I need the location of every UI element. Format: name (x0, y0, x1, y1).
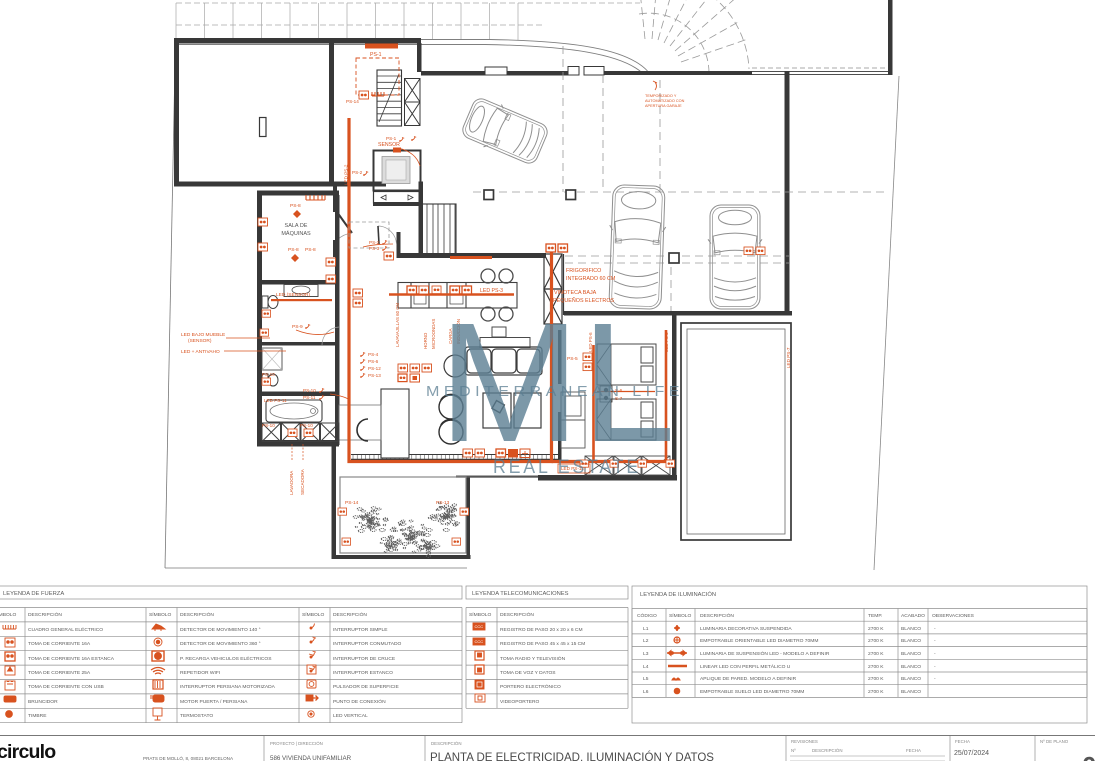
svg-text:DESCRIPCIÓN: DESCRIPCIÓN (180, 611, 214, 618)
svg-text:APLIQUE DE PARED. MODELO A DEF: APLIQUE DE PARED. MODELO A DEFINIR (700, 676, 797, 682)
svg-text:DETECTOR DE MOVIMIENTO 360 °: DETECTOR DE MOVIMIENTO 360 ° (180, 641, 261, 647)
svg-text:CCC: CCC (475, 624, 484, 629)
svg-text:BLANCO: BLANCO (901, 638, 921, 644)
svg-text:VIDEOPORTERO: VIDEOPORTERO (500, 699, 540, 705)
svg-text:BLANCO: BLANCO (901, 651, 921, 657)
svg-text:LEYENDA TELECOMUNICACIONES: LEYENDA TELECOMUNICACIONES (472, 591, 569, 597)
svg-text:ACABADO: ACABADO (901, 613, 925, 619)
svg-text:TERMOSTATO: TERMOSTATO (180, 713, 213, 719)
svg-text:LED VERTICAL: LED VERTICAL (333, 713, 368, 719)
svg-text:HORNO: HORNO (423, 332, 428, 349)
svg-text:L3: L3 (643, 651, 649, 657)
svg-text:2700 K: 2700 K (868, 689, 884, 695)
svg-text:PORTERO ELECTRÓNICO: PORTERO ELECTRÓNICO (500, 683, 561, 690)
svg-text:LAVAVAJILLAS 60 CM: LAVAVAJILLAS 60 CM (395, 303, 400, 347)
svg-text:FECHA: FECHA (955, 739, 970, 744)
svg-text:PRATS DE MOLLÓ, 8, 08021 BARCE: PRATS DE MOLLÓ, 8, 08021 BARCELONA (143, 755, 234, 761)
svg-text:BRUNCIDOR: BRUNCIDOR (28, 699, 58, 705)
svg-text:DESCRIPCIÓN: DESCRIPCIÓN (700, 612, 734, 619)
svg-text:DESCRIPCIÓN: DESCRIPCIÓN (500, 611, 534, 618)
svg-text:BLANCO: BLANCO (901, 676, 921, 682)
svg-text:PS-4: PS-4 (368, 352, 379, 357)
svg-text:LED (SENSOR): LED (SENSOR) (276, 292, 311, 298)
svg-text:CUADRO GENERAL ELÉCTRICO: CUADRO GENERAL ELÉCTRICO (28, 626, 103, 633)
svg-text:PS-3: PS-3 (369, 246, 380, 251)
svg-text:OBSERVACIONES: OBSERVACIONES (932, 613, 975, 619)
svg-text:DESCRIPCIÓN: DESCRIPCIÓN (431, 741, 462, 746)
svg-text:PS-11: PS-11 (303, 395, 316, 400)
svg-text:2700 K: 2700 K (868, 651, 884, 657)
svg-text:PROYECTO | DIRECCIÓN: PROYECTO | DIRECCIÓN (270, 741, 323, 746)
svg-text:FECHA: FECHA (906, 748, 921, 753)
svg-text:REPETIDOR WIFI: REPETIDOR WIFI (180, 670, 220, 676)
svg-text:CÓDIGO: CÓDIGO (637, 612, 657, 619)
svg-text:L4: L4 (643, 664, 649, 670)
svg-text:2700 K: 2700 K (868, 638, 884, 644)
svg-text:BLANCO: BLANCO (901, 626, 921, 632)
svg-text:PS-8: PS-8 (305, 247, 316, 253)
svg-text:BLANCO: BLANCO (901, 689, 921, 695)
svg-text:PS-10: PS-10 (300, 423, 313, 428)
svg-text:DESCRIPCIÓN: DESCRIPCIÓN (28, 611, 62, 618)
svg-text:INTERRUPTOR ESTANCO: INTERRUPTOR ESTANCO (333, 670, 393, 676)
svg-text:PS-14: PS-14 (345, 500, 359, 506)
svg-text:TIMBRE: TIMBRE (28, 713, 47, 719)
svg-text:PUNTO DE CONEXIÓN: PUNTO DE CONEXIÓN (333, 698, 386, 705)
svg-text:LED + ANTIVAHO: LED + ANTIVAHO (181, 349, 220, 355)
svg-text:L: L (581, 288, 676, 478)
svg-text:SÍMBOLO: SÍMBOLO (669, 612, 691, 619)
svg-text:PS-6: PS-6 (368, 359, 379, 364)
svg-text:MOTOR PUERTA / PERSIANA: MOTOR PUERTA / PERSIANA (180, 699, 248, 705)
svg-text:PS-10: PS-10 (262, 423, 275, 428)
svg-text:INTERRUPTOR PERSIANA MOTORIZAD: INTERRUPTOR PERSIANA MOTORIZADA (180, 684, 276, 690)
svg-text:PS-8: PS-8 (290, 203, 301, 209)
svg-text:MICROONDAS: MICROONDAS (431, 319, 436, 349)
svg-text:MÁQUINAS: MÁQUINAS (281, 230, 311, 237)
svg-text:(SENSOR): (SENSOR) (188, 338, 212, 344)
svg-text:EMPOTRABLE SUELO LED DIAMETRO: EMPOTRABLE SUELO LED DIAMETRO 70MM (700, 689, 804, 695)
svg-text:FRIGORIFICO: FRIGORIFICO (566, 268, 601, 274)
svg-text:REGISTRO DE PASO 20 x 20 x 6 C: REGISTRO DE PASO 20 x 20 x 6 CM (500, 627, 583, 633)
svg-text:M: M (439, 288, 581, 478)
svg-text:TOMA DE CORRIENTE 16A ESTANCA: TOMA DE CORRIENTE 16A ESTANCA (28, 656, 115, 662)
svg-text:LED PS-7: LED PS-7 (786, 347, 791, 368)
svg-text:04: 04 (1082, 751, 1095, 761)
svg-text:L2: L2 (643, 638, 649, 644)
svg-text:LUMINARIA DECORATIVA SUSPENDID: LUMINARIA DECORATIVA SUSPENDIDA (700, 626, 792, 632)
svg-text:25/07/2024: 25/07/2024 (954, 750, 989, 757)
svg-text:SÍMBOLO: SÍMBOLO (302, 611, 324, 618)
svg-text:LEYENDA DE ILUMINACIÓN: LEYENDA DE ILUMINACIÓN (640, 591, 716, 598)
svg-text:LAVADORA: LAVADORA (289, 470, 294, 495)
svg-text:SÍMBOLO: SÍMBOLO (469, 611, 491, 618)
svg-text:PS-13: PS-13 (436, 500, 450, 506)
svg-text:PS-10: PS-10 (262, 372, 275, 377)
svg-text:MEDITERRANEAN LIFE: MEDITERRANEAN LIFE (426, 384, 684, 400)
svg-text:TOMA DE CORRIENTE 16A: TOMA DE CORRIENTE 16A (28, 641, 91, 647)
svg-text:L6: L6 (643, 689, 649, 695)
svg-text:PS-10: PS-10 (303, 388, 316, 393)
svg-text:TOMA RADIO Y TELEVISIÓN: TOMA RADIO Y TELEVISIÓN (500, 655, 566, 662)
svg-text:LED BAJO MUEBLE: LED BAJO MUEBLE (181, 332, 225, 338)
svg-text:PS-1: PS-1 (370, 52, 382, 58)
svg-text:SÍMBOLO: SÍMBOLO (149, 611, 171, 618)
svg-text:2700 K: 2700 K (868, 664, 884, 670)
svg-text:SÍMBOLO: SÍMBOLO (0, 611, 16, 618)
svg-text:PS-13: PS-13 (368, 373, 381, 378)
svg-text:SALA DE: SALA DE (285, 223, 308, 229)
svg-text:TEMP.: TEMP. (868, 613, 882, 619)
svg-text:APERTURA GARAJE: APERTURA GARAJE (645, 104, 682, 108)
svg-text:PS-2: PS-2 (369, 240, 380, 245)
svg-text:P. RECARGA VEHICULOS ELÉCTRICO: P. RECARGA VEHICULOS ELÉCTRICOS (180, 655, 272, 662)
svg-text:PS-1: PS-1 (386, 136, 397, 141)
svg-text:EMPOTRABLE ORIENTABLE LED DIAM: EMPOTRABLE ORIENTABLE LED DIAMETRO 70MM (700, 638, 818, 644)
svg-text:CCC: CCC (475, 639, 484, 644)
svg-text:586 VIVIENDA UNIFAMILIAR: 586 VIVIENDA UNIFAMILIAR (270, 755, 352, 761)
svg-text:Nº DE PLANO: Nº DE PLANO (1040, 739, 1069, 744)
svg-text:LINEAR LED CON PERFIL METÁLICO: LINEAR LED CON PERFIL METÁLICO U (700, 663, 791, 670)
svg-text:PULSADOR DE SUPERFICIE: PULSADOR DE SUPERFICIE (333, 684, 400, 690)
svg-text:REAL ESTATE: REAL ESTATE (493, 457, 641, 478)
svg-text:INTERRUPTOR CONMUTADO: INTERRUPTOR CONMUTADO (333, 641, 401, 647)
svg-text:INTERRUPTOR SIMPLE: INTERRUPTOR SIMPLE (333, 627, 388, 633)
svg-text:TOMA DE VOZ Y DATOS: TOMA DE VOZ Y DATOS (500, 670, 556, 676)
svg-text:LUMINARIA DE SUSPENSIÓN LED -: LUMINARIA DE SUSPENSIÓN LED - MODELO A D… (700, 650, 830, 657)
svg-text:PLANTA DE ELECTRICIDAD, ILUMIN: PLANTA DE ELECTRICIDAD, ILUMINACIÓN Y DA… (430, 751, 714, 761)
svg-text:INTERRUPTOR DE CRUCE: INTERRUPTOR DE CRUCE (333, 656, 396, 662)
svg-text:TEMPORIZADO Y: TEMPORIZADO Y (645, 94, 677, 98)
svg-text:REVISIONES: REVISIONES (791, 739, 818, 744)
svg-text:REGISTRO DE PASO 45 x 45 x 15: REGISTRO DE PASO 45 x 45 x 15 CM (500, 641, 585, 647)
svg-text:DESCRIPCIÓN: DESCRIPCIÓN (333, 611, 367, 618)
svg-text:2700 K: 2700 K (868, 626, 884, 632)
svg-text:INTEGRADO 60 CM: INTEGRADO 60 CM (566, 276, 616, 282)
svg-text:Nº: Nº (791, 748, 796, 753)
svg-text:BLANCO: BLANCO (901, 664, 921, 670)
svg-text:LED PS-2: LED PS-2 (344, 164, 349, 185)
svg-text:2700 K: 2700 K (868, 676, 884, 682)
svg-text:PS-8: PS-8 (288, 247, 299, 253)
svg-text:SENSOR: SENSOR (378, 142, 400, 148)
svg-text:L1: L1 (643, 626, 649, 632)
svg-text:SECADORA: SECADORA (300, 468, 305, 495)
svg-text:TOMA DE CORRIENTE CON USB: TOMA DE CORRIENTE CON USB (28, 684, 104, 690)
svg-text:PS-9: PS-9 (292, 324, 303, 330)
svg-text:LEYENDA DE FUERZA: LEYENDA DE FUERZA (3, 591, 64, 597)
svg-text:DESCRIPCIÓN: DESCRIPCIÓN (812, 748, 843, 753)
svg-text:PS-14: PS-14 (346, 99, 359, 104)
svg-text:AUTOMATIZADO CON: AUTOMATIZADO CON (645, 99, 685, 103)
svg-text:DETECTOR DE MOVIMIENTO 140 °: DETECTOR DE MOVIMIENTO 140 ° (180, 627, 261, 633)
svg-text:PS-12: PS-12 (368, 366, 381, 371)
svg-text:circulo: circulo (0, 741, 56, 761)
svg-text:L5: L5 (643, 676, 649, 682)
svg-text:PS-2: PS-2 (352, 170, 363, 175)
svg-text:LED PS-11: LED PS-11 (264, 398, 287, 403)
svg-text:TOMA DE CORRIENTE 25A: TOMA DE CORRIENTE 25A (28, 670, 91, 676)
